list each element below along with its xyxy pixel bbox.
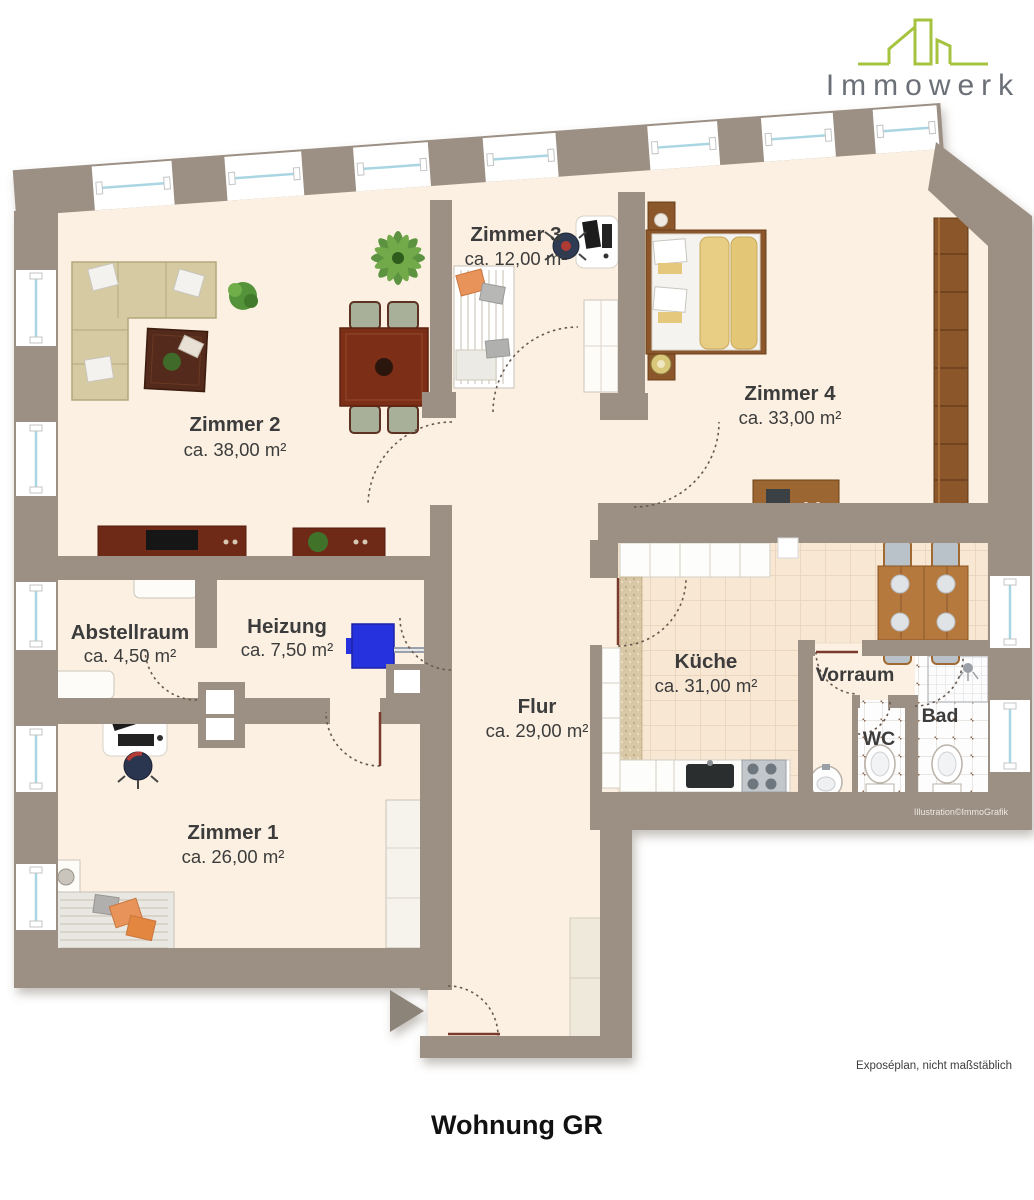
- svg-text:Zimmer 2: Zimmer 2: [189, 413, 280, 436]
- shaft-opening: [206, 690, 234, 714]
- window: [647, 121, 720, 170]
- tv-sideboard: [98, 526, 246, 558]
- window: [761, 113, 836, 162]
- illustration-credit: Illustration©ImmoGrafik: [914, 807, 1009, 817]
- plant-sideboard: [293, 528, 385, 558]
- toilet: [932, 745, 962, 795]
- window: [990, 700, 1030, 772]
- entry-arrow: [390, 990, 424, 1032]
- shaft-opening: [206, 718, 234, 740]
- svg-text:Vorraum: Vorraum: [816, 664, 895, 686]
- wardrobe: [934, 218, 968, 512]
- wall-zimmer4-south: [598, 503, 1032, 543]
- room-label-abstellraum: Abstellraum ca. 4,50 m²: [71, 621, 189, 666]
- double-bed: [646, 230, 766, 354]
- stove: [742, 760, 786, 792]
- wall-vorraum-wc: [852, 708, 858, 792]
- wall-zimmer1-east: [420, 724, 452, 948]
- desk: [576, 216, 618, 268]
- floorplan-svg: Immowerk: [0, 0, 1034, 1200]
- radiator: [54, 671, 114, 699]
- svg-text:ca. 33,00 m²: ca. 33,00 m²: [739, 407, 842, 428]
- outer-wall-bottom-zimmer1: [14, 948, 452, 988]
- wall-stub: [422, 392, 456, 418]
- single-bed: [454, 266, 514, 388]
- window: [990, 576, 1030, 648]
- wall-stub: [600, 393, 648, 420]
- svg-text:ca. 26,00 m²: ca. 26,00 m²: [182, 846, 285, 867]
- boiler: [346, 624, 394, 668]
- wall-abstellraum-heizung: [195, 580, 217, 648]
- wall-niche: [778, 538, 798, 558]
- svg-text:ca. 12,00 m²: ca. 12,00 m²: [465, 248, 568, 269]
- wall-zimmer3-zimmer4: [618, 192, 645, 395]
- svg-text:ca. 29,00 m²: ca. 29,00 m²: [486, 720, 589, 741]
- svg-text:Abstellraum: Abstellraum: [71, 621, 189, 644]
- window: [16, 582, 56, 650]
- palm-plant: [371, 231, 425, 285]
- room-label-vorraum: Vorraum: [816, 664, 895, 686]
- room-label-wc: WC: [863, 728, 896, 750]
- logo-text: Immowerk: [826, 69, 1020, 102]
- svg-text:Zimmer 4: Zimmer 4: [744, 382, 836, 405]
- wall-zimmer2-east: [430, 505, 452, 580]
- wall-wc-north-east: [888, 695, 905, 708]
- window: [92, 161, 175, 211]
- wall-wc-north-west: [852, 695, 860, 708]
- hall-cabinet: [570, 918, 602, 1038]
- window: [16, 422, 56, 496]
- window: [16, 726, 56, 792]
- wall-kueche-west-upper: [590, 540, 618, 578]
- building-outline-icon: [858, 20, 988, 64]
- svg-text:ca. 7,50 m²: ca. 7,50 m²: [241, 639, 334, 660]
- wall-vorraum-north-east: [862, 640, 988, 656]
- floorplan: Illustration©ImmoGrafik: [13, 103, 1032, 1058]
- window: [16, 864, 56, 930]
- room-label-heizung: Heizung ca. 7,50 m²: [241, 615, 334, 660]
- coffee-table: [144, 328, 207, 391]
- svg-text:ca. 31,00 m²: ca. 31,00 m²: [655, 675, 758, 696]
- window: [873, 105, 940, 154]
- wardrobe: [386, 800, 422, 948]
- wall-zimmer2-south: [14, 556, 452, 580]
- svg-text:ca. 38,00 m²: ca. 38,00 m²: [184, 439, 287, 460]
- svg-text:Küche: Küche: [675, 650, 738, 673]
- entry-stub-wall-right: [600, 830, 632, 1058]
- wall-wc-bad: [905, 695, 918, 795]
- kitchen-sink: [686, 760, 734, 788]
- window: [224, 151, 304, 200]
- window: [353, 142, 431, 191]
- page-title: Wohnung GR: [431, 1110, 603, 1140]
- svg-text:Flur: Flur: [518, 695, 557, 718]
- svg-text:WC: WC: [863, 728, 896, 750]
- wall-zimmer1-north-west: [14, 698, 330, 724]
- wall-vorraum-west: [798, 640, 813, 795]
- wall-zimmer2-zimmer3: [430, 200, 452, 416]
- wardrobe: [584, 300, 618, 392]
- svg-text:Zimmer 1: Zimmer 1: [187, 821, 278, 844]
- toilet: [865, 745, 895, 795]
- window: [483, 133, 559, 182]
- bed: [54, 892, 174, 954]
- shaft-opening: [394, 670, 420, 693]
- logo: Immowerk: [826, 20, 1020, 102]
- disclaimer-text: Exposéplan, nicht maßstäblich: [856, 1060, 1012, 1072]
- svg-text:Heizung: Heizung: [247, 615, 327, 638]
- floorplan-page: Immowerk: [0, 0, 1034, 1200]
- svg-text:Bad: Bad: [922, 705, 959, 727]
- wall-heizung-east: [424, 580, 452, 698]
- window: [16, 270, 56, 346]
- room-label-bad: Bad: [922, 705, 959, 727]
- wall-kueche-west-lower: [590, 645, 602, 792]
- svg-text:Zimmer 3: Zimmer 3: [470, 223, 561, 246]
- svg-text:ca. 4,50 m²: ca. 4,50 m²: [84, 645, 177, 666]
- entry-stub-wall-left: [420, 948, 452, 990]
- wall-zimmer1-north-east: [380, 698, 452, 724]
